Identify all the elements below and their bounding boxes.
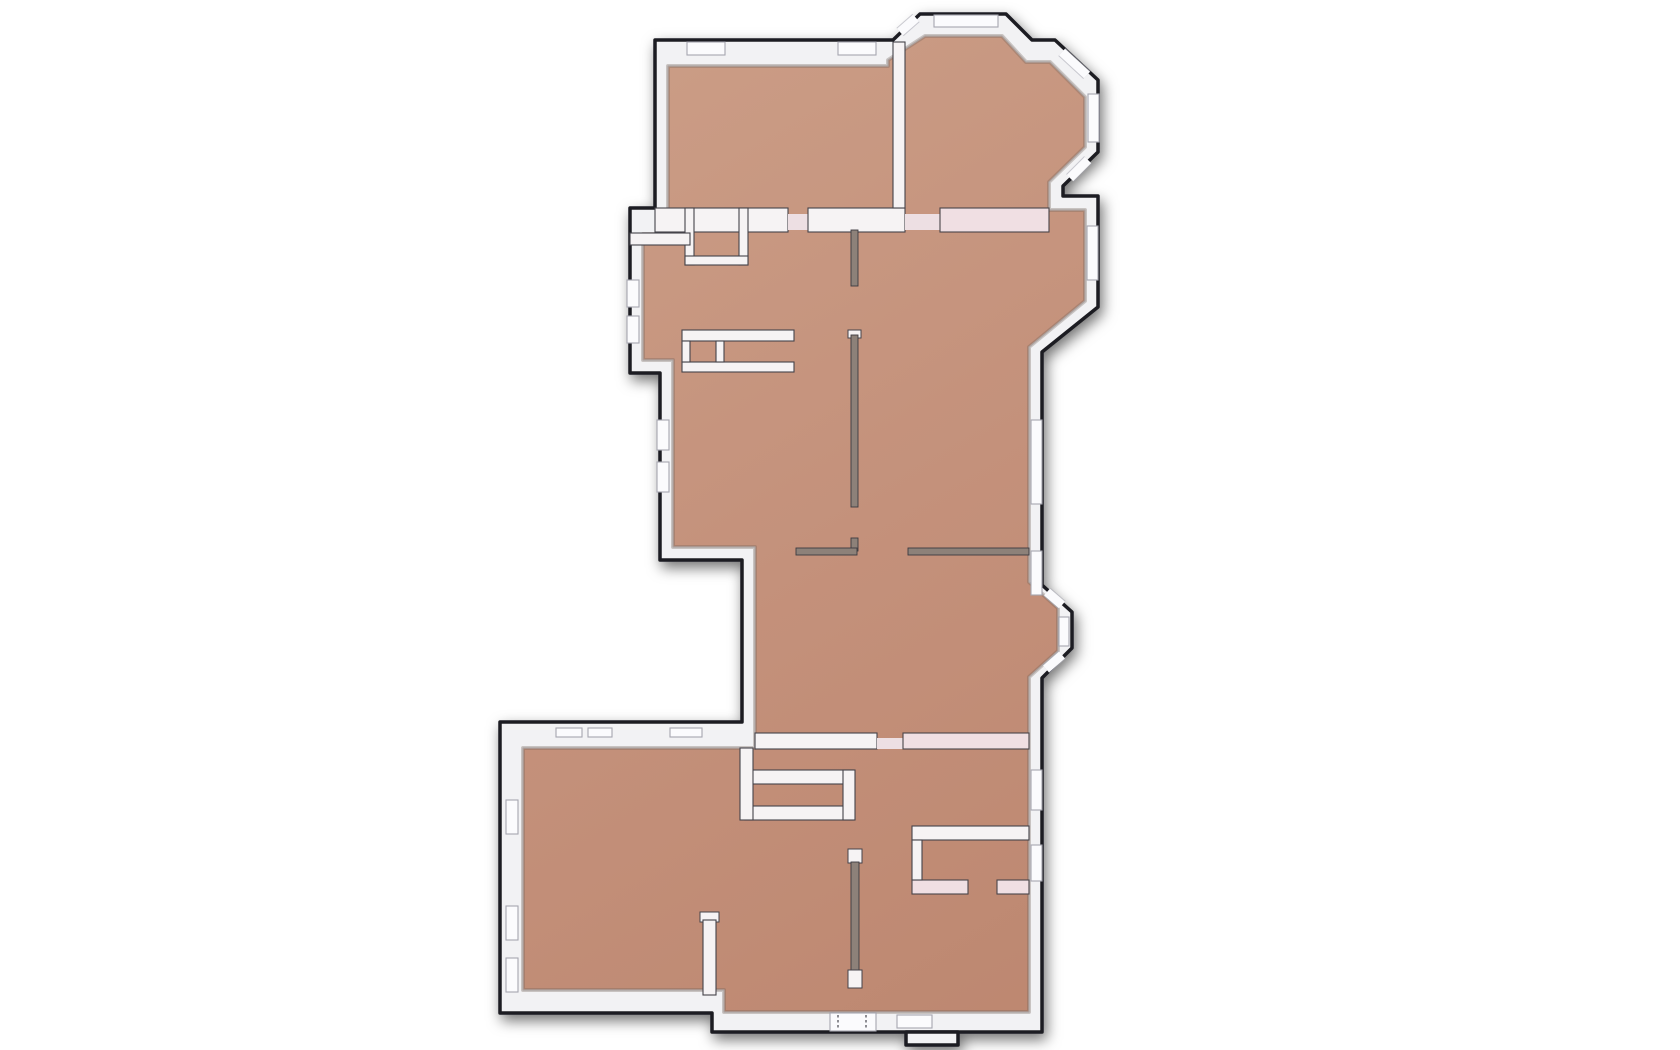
wall-divider-top-bedrooms [893,42,905,208]
thin-wall-west-segment [796,548,857,555]
door-threshold-top-1 [788,214,808,230]
corridor-south-wall-west [755,733,877,749]
window-top-left-room-1 [687,42,725,55]
nook-shelf-wall [630,233,690,245]
window-east-bottom-1 [1031,770,1042,810]
thin-wall-east-segment [908,548,1029,555]
room-corridor [755,553,1025,731]
floor-plan [0,0,1680,1050]
wall-band-top-mid-segment [808,208,905,232]
entrance-porch-step [906,1032,958,1045]
hall-divider [851,862,859,972]
window-east-mid-2 [1031,551,1042,595]
window-bottom-left-top-slit-1 [556,728,582,737]
room-entry-hall [742,790,850,1008]
mid-closet-north-wall [682,330,794,341]
window-bottom-left-west-2 [506,906,518,940]
window-west-mid-1 [627,280,639,307]
window-west-lower-1 [657,420,669,450]
window-west-lower-2 [657,462,669,492]
window-west-mid-2 [627,316,639,343]
entrance-door [830,1013,876,1031]
window-right-bay-east [1088,94,1099,142]
mid-closet-south-wall [682,362,794,372]
hall-wardrobe-west-cap [740,748,753,820]
mid-closet-west-cap [682,341,690,362]
window-east-bottom-2 [1031,845,1042,881]
entrance-door-slab [830,1013,876,1031]
window-bottom-left-top-slit-2 [588,728,612,737]
hall-divider-bottom-cap [848,970,862,988]
hall-wardrobe-south-wall [745,806,853,820]
room-bedroom-top-right [905,40,1080,205]
window-bay-top [934,15,998,27]
window-top-left-room-2 [838,42,876,55]
br-closet-south-wall-east [997,880,1029,894]
room-living-area [673,234,1023,534]
window-east-upper-section [1087,226,1098,280]
wall-band-top-left-segment [655,208,788,232]
bl-partial-wall [703,920,716,995]
window-bottom-left-top-slit-3 [670,728,702,737]
hall-wardrobe-east-cap [843,770,855,820]
nook-closet-south-wall [685,256,748,265]
window-lower-bay-side [1059,617,1069,646]
door-threshold-corridor [877,738,903,749]
hall-wardrobe-north-wall [745,770,853,784]
room-bedroom-bottom-right [868,896,1026,1010]
partition-lower [851,335,858,507]
mid-closet-divider [716,341,724,362]
partition-upper [851,230,858,286]
br-closet-west-leg [912,840,922,880]
wall-band-top-right-segment [940,208,1049,232]
corridor-south-wall-east [903,733,1029,749]
window-east-mid-1 [1031,420,1042,504]
floor-plan-canvas [0,0,1680,1050]
room-living-room-bottom-left [523,748,723,988]
br-closet-south-wall-west [912,880,968,894]
hall-divider-top-cap [848,849,862,863]
window-bottom-left-west-1 [506,800,518,834]
room-bedroom-top-left [668,66,890,206]
br-closet-north-wall [912,826,1029,840]
window-bottom-left-west-3 [506,958,518,992]
door-threshold-top-2 [905,214,940,230]
window-bottom-wall [897,1015,932,1028]
